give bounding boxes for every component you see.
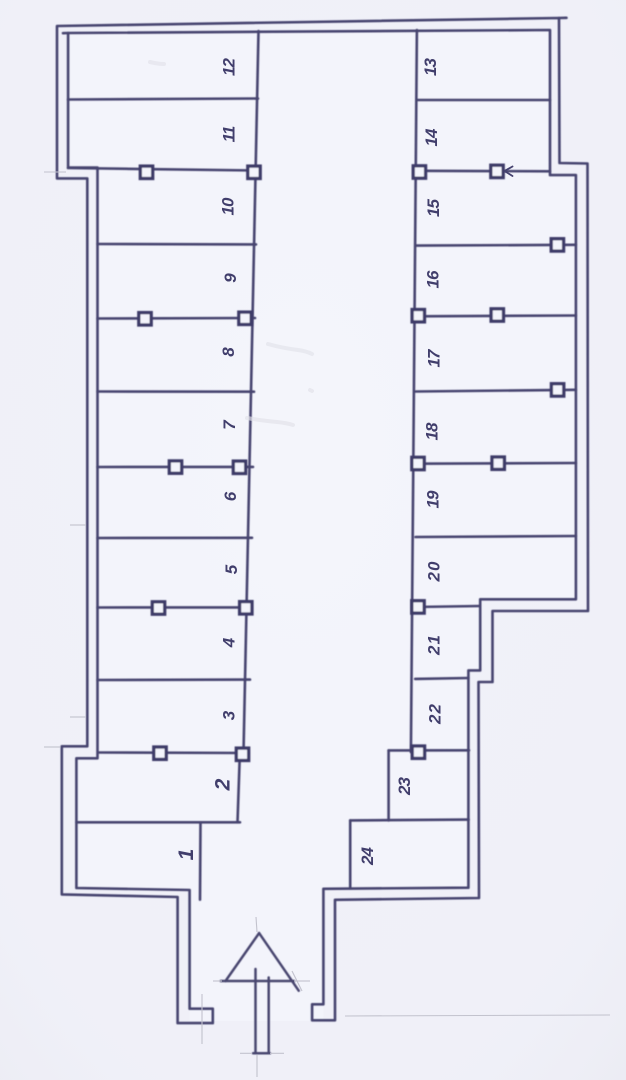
svg-text:15: 15 (424, 199, 443, 217)
svg-text:20: 20 (425, 561, 444, 583)
svg-text:14: 14 (422, 128, 441, 146)
svg-text:22: 22 (426, 703, 445, 725)
svg-text:18: 18 (423, 422, 442, 440)
svg-text:2: 2 (212, 778, 235, 791)
svg-text:13: 13 (421, 58, 440, 76)
svg-text:17: 17 (425, 348, 444, 367)
svg-text:16: 16 (424, 270, 443, 288)
svg-text:23: 23 (395, 777, 414, 796)
svg-text:10: 10 (219, 197, 238, 215)
svg-text:1: 1 (175, 849, 198, 860)
svg-text:19: 19 (424, 490, 443, 508)
svg-text:24: 24 (358, 847, 377, 866)
svg-text:21: 21 (425, 634, 444, 656)
svg-text:12: 12 (220, 58, 239, 76)
svg-text:11: 11 (220, 126, 239, 142)
svg-text:4: 4 (220, 637, 239, 648)
